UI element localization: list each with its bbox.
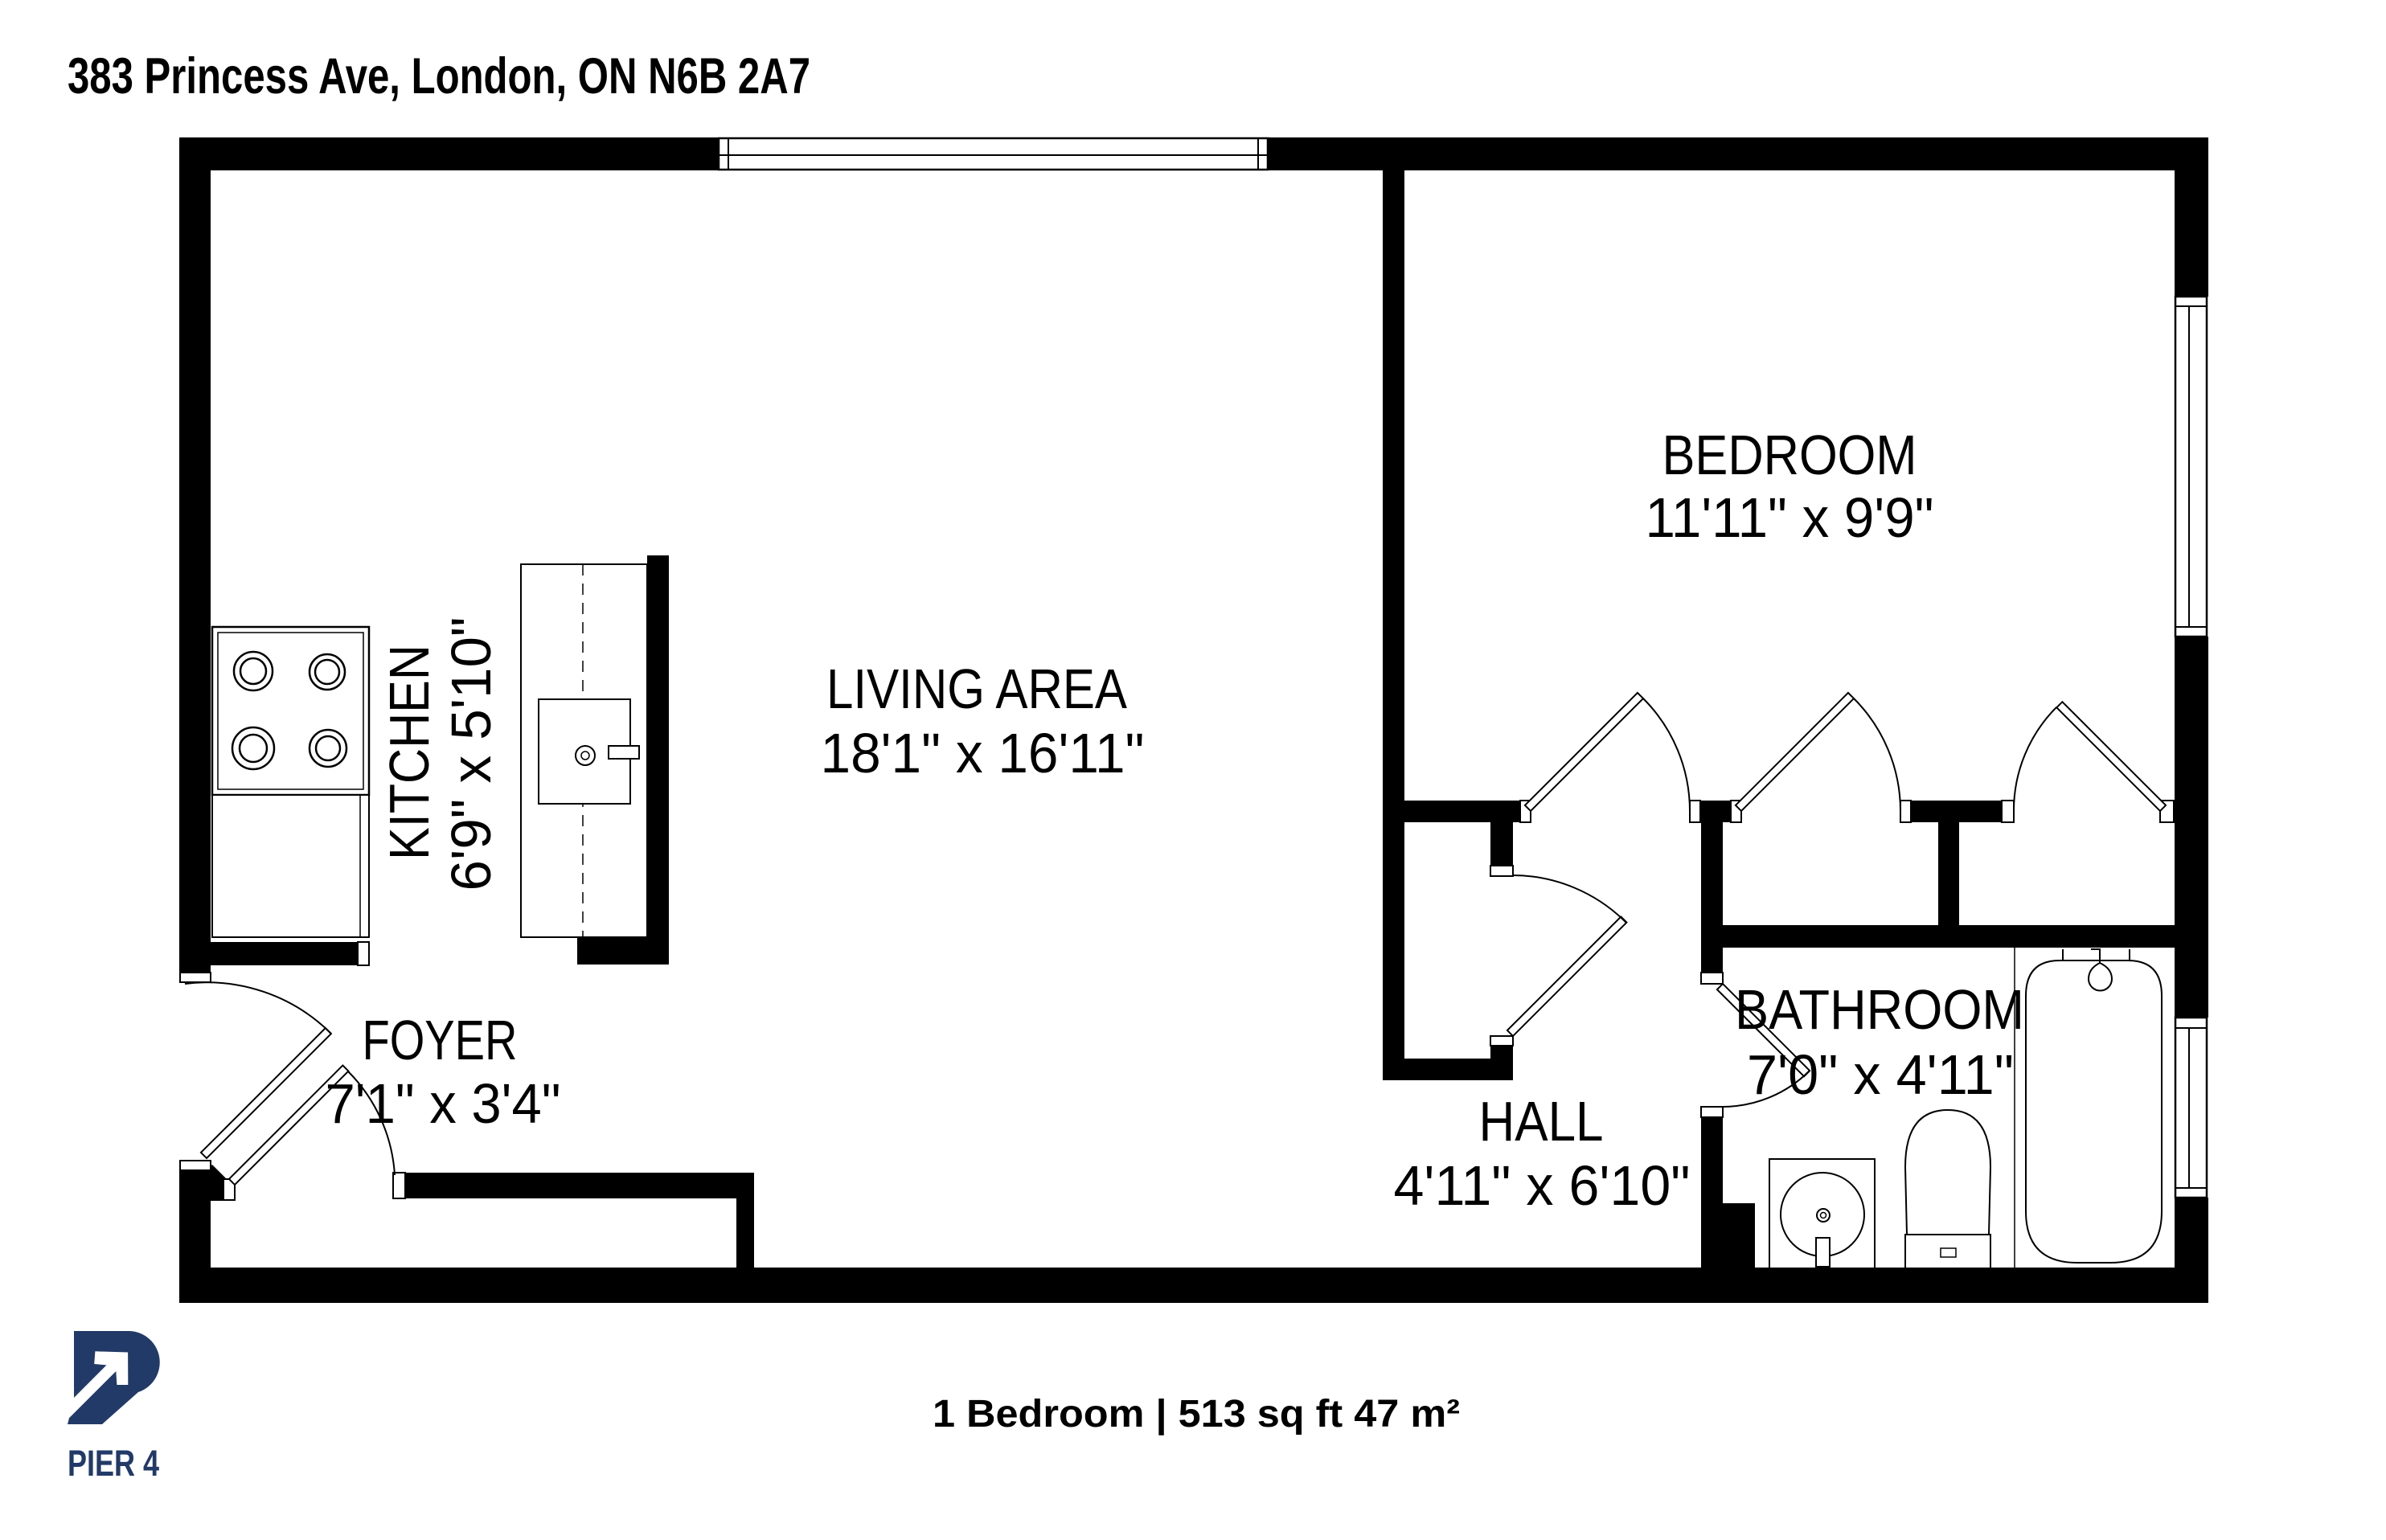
svg-text:PIER 4: PIER 4	[68, 1443, 159, 1484]
svg-text:FOYER: FOYER	[363, 1009, 518, 1071]
svg-text:4'11" x 6'10": 4'11" x 6'10"	[1394, 1154, 1691, 1217]
svg-text:LIVING AREA: LIVING AREA	[826, 657, 1127, 720]
svg-text:1 Bedroom | 513 sq ft 47 m²: 1 Bedroom | 513 sq ft 47 m²	[933, 1393, 1460, 1436]
svg-text:7'1" x 3'4": 7'1" x 3'4"	[326, 1072, 561, 1135]
svg-text:383 Princess Ave, London, ON N: 383 Princess Ave, London, ON N6B 2A7	[68, 48, 810, 104]
svg-text:HALL: HALL	[1479, 1090, 1604, 1153]
svg-text:11'11" x 9'9": 11'11" x 9'9"	[1646, 486, 1934, 549]
svg-text:BATHROOM: BATHROOM	[1735, 978, 2024, 1041]
svg-text:BEDROOM: BEDROOM	[1662, 424, 1917, 486]
svg-text:6'9" x 5'10": 6'9" x 5'10"	[440, 617, 502, 891]
svg-text:KITCHEN: KITCHEN	[378, 645, 441, 860]
svg-text:18'1" x 16'11": 18'1" x 16'11"	[821, 722, 1145, 784]
svg-text:7'0" x 4'11": 7'0" x 4'11"	[1747, 1043, 2014, 1106]
